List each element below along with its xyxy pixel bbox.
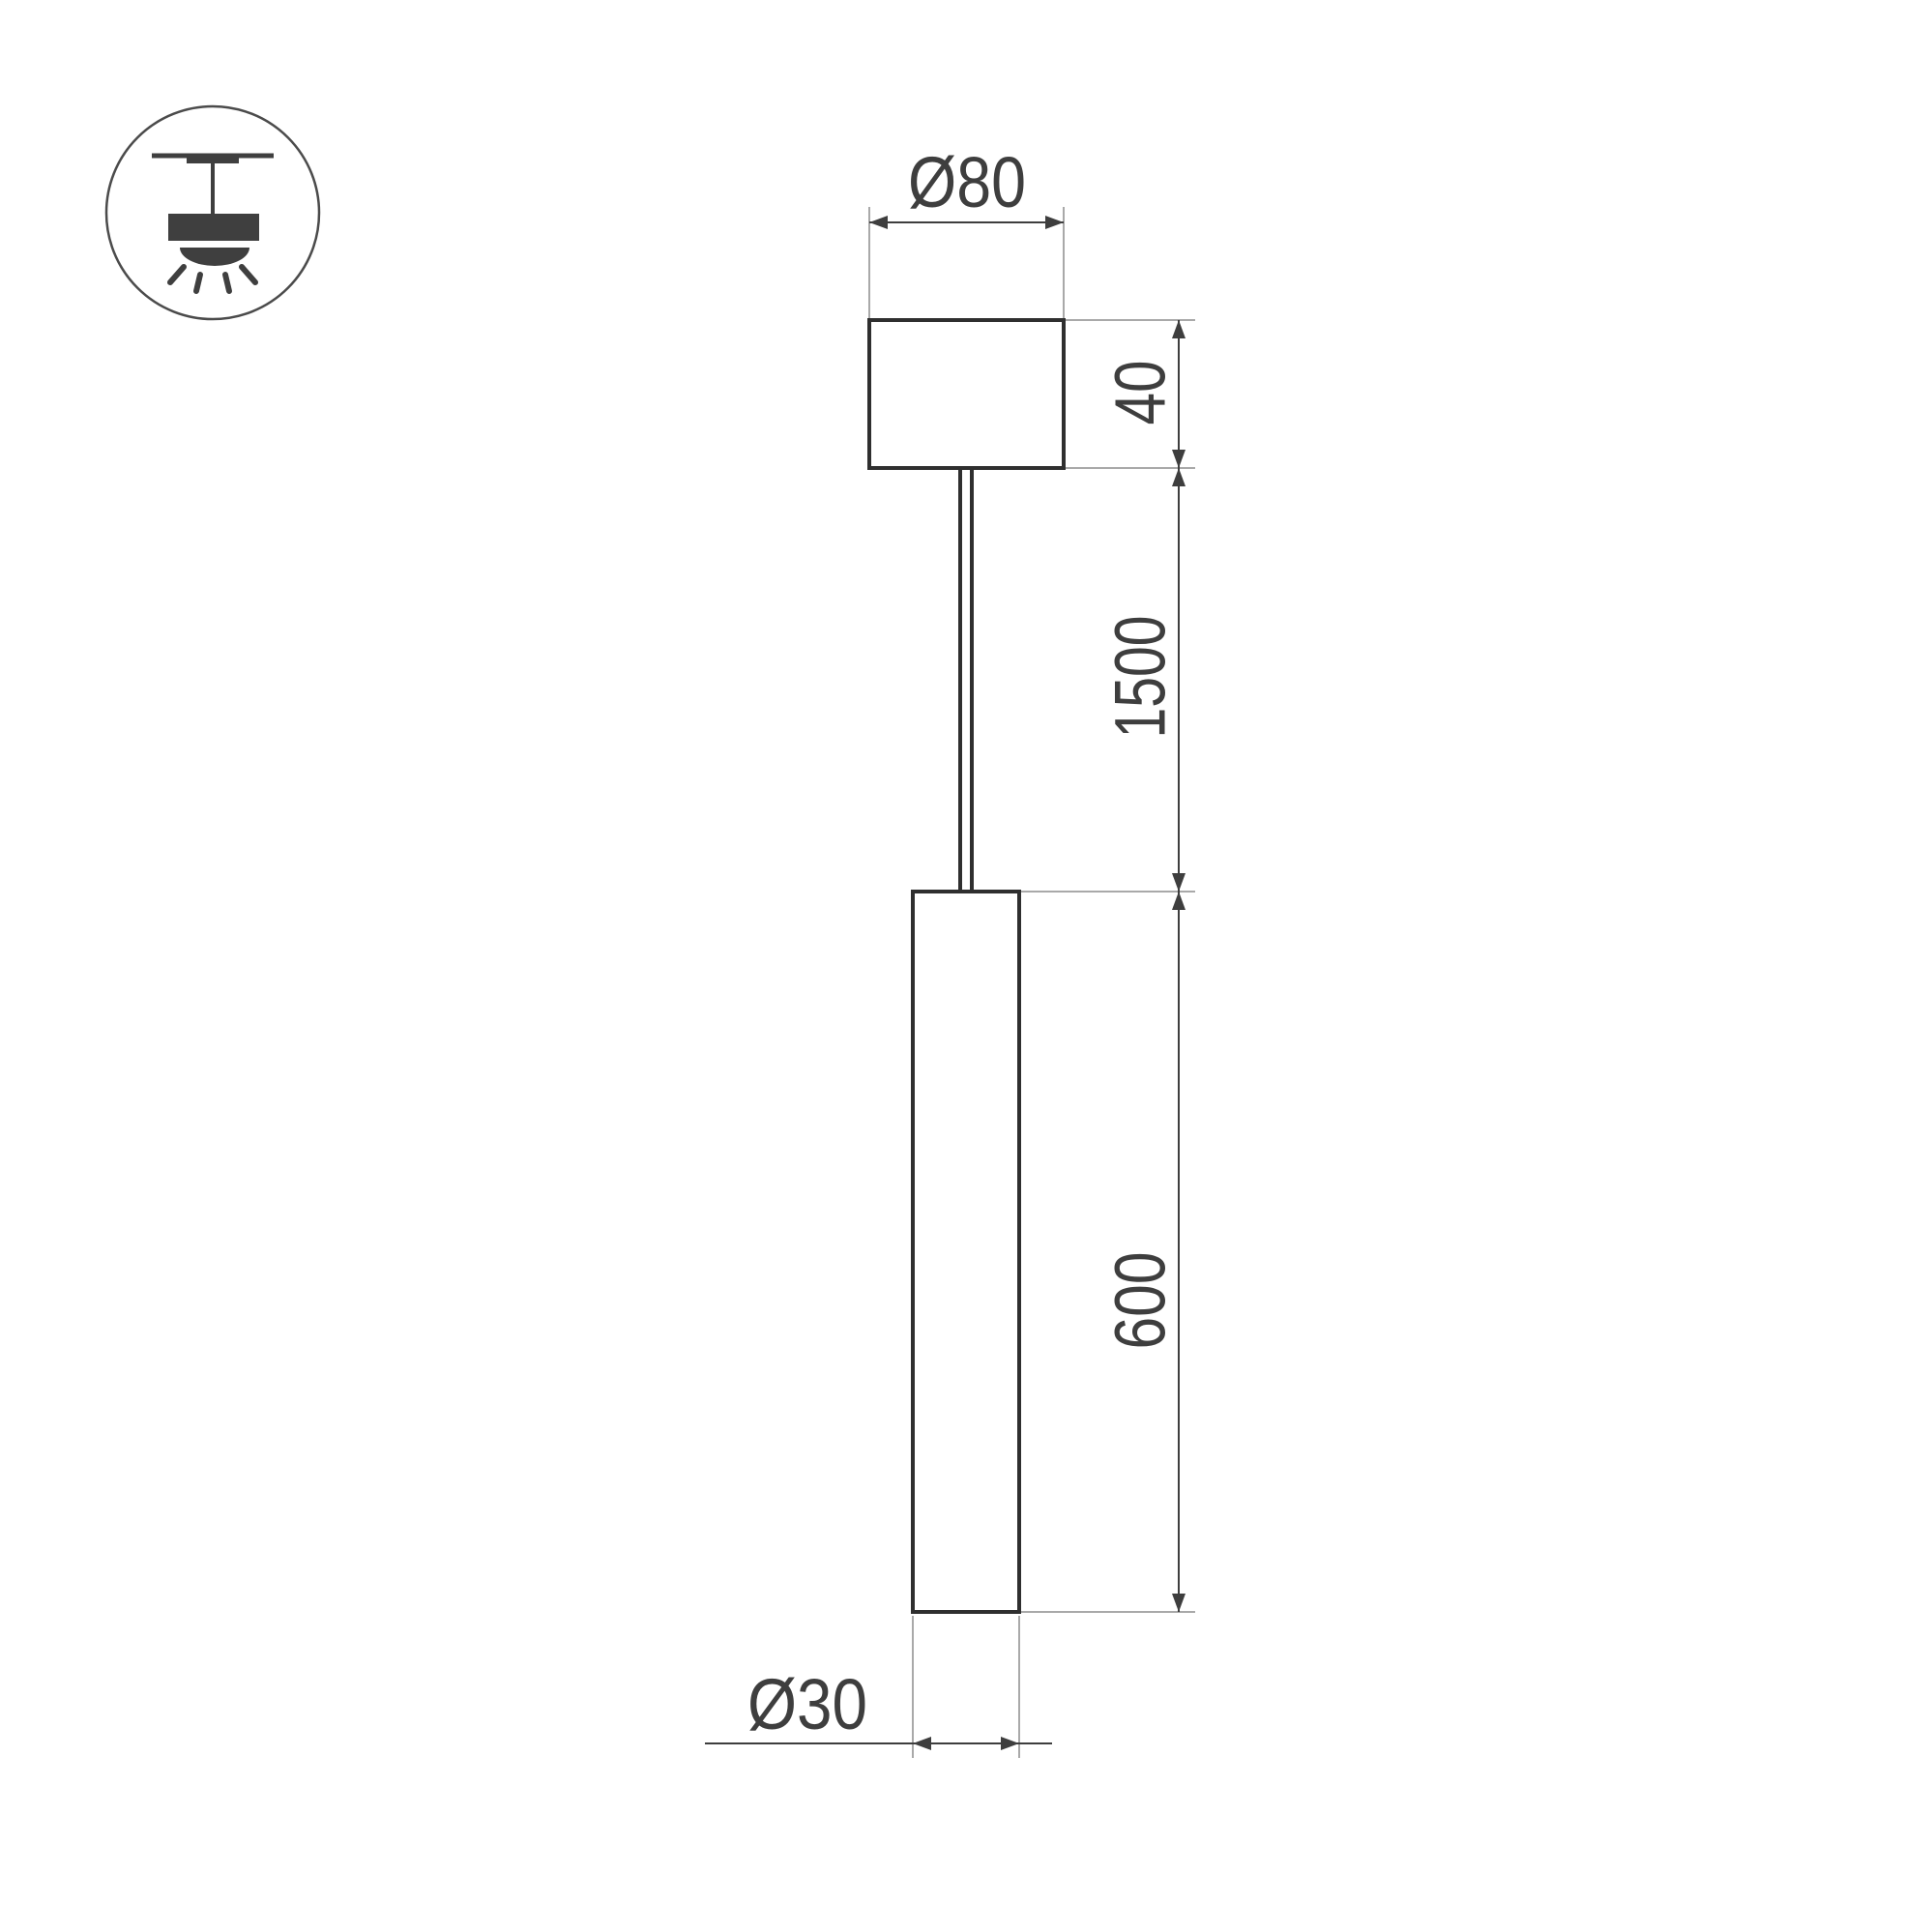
arrowhead-down	[1172, 450, 1186, 468]
arrowhead-down	[1172, 1594, 1186, 1612]
arrowhead-up	[1172, 468, 1186, 486]
dim-label-tube-diameter: Ø30	[747, 1664, 867, 1744]
pendant-lamp-dimension-drawing: Ø80 40 1500 600 Ø30	[0, 0, 1932, 1932]
dim-label-suspension-length: 1500	[1100, 616, 1181, 739]
arrowhead-left	[869, 216, 888, 229]
arrowhead-right	[1045, 216, 1064, 229]
arrowhead-left	[913, 1737, 931, 1750]
icon-light-ray	[225, 275, 229, 291]
technical-drawing-canvas: Ø80 40 1500 600 Ø30	[0, 0, 1932, 1932]
dim-label-canopy-height: 40	[1100, 361, 1181, 425]
lamp-object	[869, 320, 1064, 1612]
arrowhead-up	[1172, 892, 1186, 910]
ceiling-pendant-light-icon	[106, 106, 319, 319]
canopy-outline	[869, 320, 1064, 468]
arrowhead-up	[1172, 320, 1186, 338]
arrowhead-right	[1001, 1737, 1019, 1750]
dim-label-canopy-diameter: Ø80	[908, 142, 1026, 222]
icon-light-ray	[196, 275, 200, 291]
tube-outline	[913, 892, 1019, 1612]
arrowhead-down	[1172, 873, 1186, 892]
icon-lamp-body	[168, 214, 259, 241]
dim-label-tube-length: 600	[1100, 1252, 1181, 1350]
